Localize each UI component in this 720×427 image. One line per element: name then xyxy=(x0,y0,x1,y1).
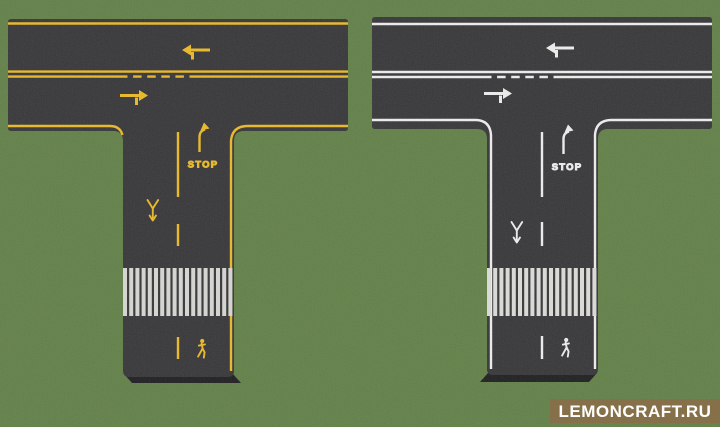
scene-canvas: STOP xyxy=(0,0,720,427)
watermark-label: LEMONCRAFT.RU xyxy=(559,403,712,420)
watermark-banner: LEMONCRAFT.RU xyxy=(550,399,720,423)
grain-texture xyxy=(0,0,720,427)
screenshot-scene: STOP xyxy=(0,0,720,427)
